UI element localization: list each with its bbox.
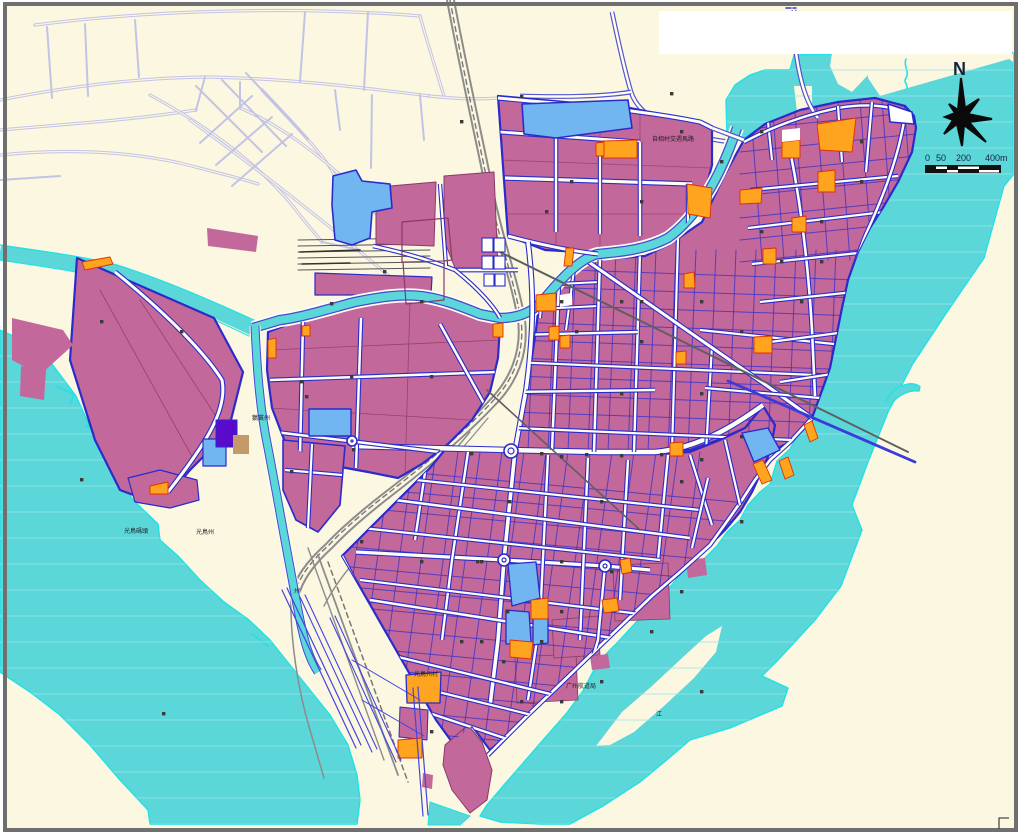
svg-text:光鳥州: 光鳥州 xyxy=(196,528,214,536)
svg-text:200: 200 xyxy=(956,153,971,163)
svg-text:0: 0 xyxy=(925,153,930,163)
svg-text:N: N xyxy=(953,59,966,79)
svg-text:鵝冀州: 鵝冀州 xyxy=(252,414,270,422)
svg-text:自相村交週馬路: 自相村交週馬路 xyxy=(652,135,694,143)
svg-text:光鳥州村: 光鳥州村 xyxy=(414,670,438,678)
svg-text:光鳥碼頭: 光鳥碼頭 xyxy=(124,527,148,535)
svg-text:广州航道局: 广州航道局 xyxy=(566,682,596,690)
svg-text:50: 50 xyxy=(936,153,946,163)
svg-text:400m: 400m xyxy=(985,153,1008,163)
svg-text:江: 江 xyxy=(656,711,662,718)
svg-text:州: 州 xyxy=(294,588,300,595)
